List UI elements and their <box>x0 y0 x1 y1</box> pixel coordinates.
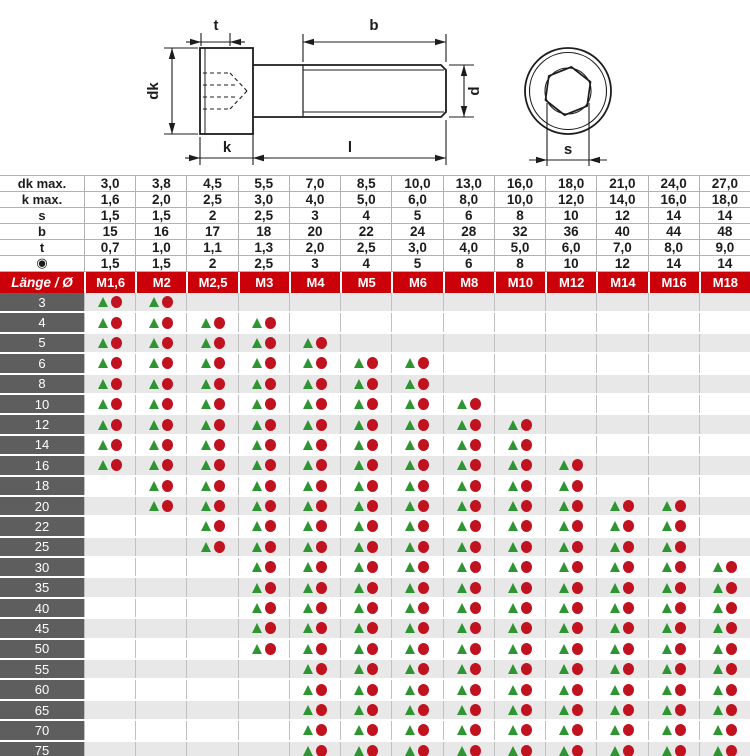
matrix-cell <box>699 721 750 739</box>
red-circle-icon <box>162 337 173 349</box>
matrix-row: 70 <box>0 721 750 741</box>
matrix-cell <box>699 538 750 556</box>
green-triangle-icon <box>508 542 518 552</box>
green-triangle-icon <box>662 521 672 531</box>
matrix-cell <box>648 395 699 413</box>
green-triangle-icon <box>354 481 364 491</box>
red-circle-icon <box>214 480 225 492</box>
red-circle-icon <box>265 520 276 532</box>
red-circle-icon <box>675 561 686 573</box>
matrix-cell <box>238 578 289 596</box>
green-triangle-icon <box>354 562 364 572</box>
matrix-cell <box>238 415 289 433</box>
spec-value-cell: 6 <box>443 256 494 271</box>
red-circle-icon <box>265 541 276 553</box>
spec-value-cell: 2,5 <box>238 208 289 223</box>
matrix-header-size: M12 <box>545 272 596 293</box>
red-circle-icon <box>623 643 634 655</box>
green-triangle-icon <box>405 705 415 715</box>
spec-value-cell: 8,0 <box>648 240 699 255</box>
red-circle-icon <box>214 398 225 410</box>
red-circle-icon <box>521 582 532 594</box>
red-circle-icon <box>214 419 225 431</box>
spec-value-cell: 32 <box>494 224 545 239</box>
red-circle-icon <box>265 622 276 634</box>
matrix-row: 3 <box>0 293 750 313</box>
red-circle-icon <box>316 561 327 573</box>
green-triangle-icon <box>405 746 415 756</box>
matrix-row: 14 <box>0 436 750 456</box>
red-circle-icon <box>675 541 686 553</box>
matrix-cell <box>648 538 699 556</box>
spec-value-cell: 1,5 <box>135 256 186 271</box>
matrix-cell <box>443 415 494 433</box>
red-circle-icon <box>367 602 378 614</box>
spec-value-cell: 6,0 <box>545 240 596 255</box>
matrix-cell <box>648 660 699 678</box>
red-circle-icon <box>521 439 532 451</box>
green-triangle-icon <box>252 583 262 593</box>
green-triangle-icon <box>303 399 313 409</box>
green-triangle-icon <box>252 338 262 348</box>
green-triangle-icon <box>457 583 467 593</box>
matrix-cell <box>596 640 647 658</box>
red-circle-icon <box>572 480 583 492</box>
matrix-cell <box>135 578 186 596</box>
green-triangle-icon <box>713 603 723 613</box>
matrix-row-length-label: 75 <box>0 742 84 756</box>
matrix-row-length-label: 50 <box>0 640 84 658</box>
matrix-row: 30 <box>0 558 750 578</box>
red-circle-icon <box>265 317 276 329</box>
matrix-cell <box>135 558 186 576</box>
red-circle-icon <box>521 561 532 573</box>
red-circle-icon <box>316 480 327 492</box>
spec-value-cell: 2,0 <box>135 192 186 207</box>
spec-row: k max.1,62,02,53,04,05,06,08,010,012,014… <box>0 192 750 208</box>
matrix-cell <box>84 354 135 372</box>
green-triangle-icon <box>98 297 108 307</box>
matrix-cell <box>135 395 186 413</box>
matrix-cell <box>135 334 186 352</box>
matrix-cell <box>238 742 289 756</box>
red-circle-icon <box>316 357 327 369</box>
red-circle-icon <box>418 684 429 696</box>
matrix-cell <box>391 558 442 576</box>
dim-label-b: b <box>369 17 378 34</box>
matrix-cell <box>545 293 596 311</box>
matrix-cell <box>340 660 391 678</box>
red-circle-icon <box>265 419 276 431</box>
red-circle-icon <box>162 398 173 410</box>
matrix-header-size: M14 <box>596 272 647 293</box>
green-triangle-icon <box>610 746 620 756</box>
spec-row: s1,51,522,53456810121414 <box>0 208 750 224</box>
red-circle-icon <box>162 296 173 308</box>
matrix-cell <box>238 599 289 617</box>
matrix-cell <box>494 599 545 617</box>
matrix-cell <box>289 517 340 535</box>
matrix-cell <box>238 680 289 698</box>
red-circle-icon <box>316 378 327 390</box>
red-circle-icon <box>265 439 276 451</box>
matrix-cell <box>238 436 289 454</box>
red-circle-icon <box>623 541 634 553</box>
green-triangle-icon <box>252 644 262 654</box>
red-circle-icon <box>111 317 122 329</box>
red-circle-icon <box>316 541 327 553</box>
red-circle-icon <box>470 419 481 431</box>
green-triangle-icon <box>201 481 211 491</box>
matrix-cell <box>494 436 545 454</box>
spec-value-cell: 8,0 <box>443 192 494 207</box>
spec-value-cell: 16,0 <box>494 176 545 191</box>
matrix-cell <box>186 599 237 617</box>
matrix-header-size: M18 <box>699 272 750 293</box>
spec-value-cell: 15 <box>84 224 135 239</box>
green-triangle-icon <box>508 420 518 430</box>
matrix-cell <box>648 640 699 658</box>
red-circle-icon <box>521 622 532 634</box>
matrix-cell <box>238 334 289 352</box>
matrix-cell <box>238 660 289 678</box>
green-triangle-icon <box>405 501 415 511</box>
spec-value-cell: 2,0 <box>289 240 340 255</box>
spec-row-label: s <box>0 208 84 223</box>
green-triangle-icon <box>610 685 620 695</box>
green-triangle-icon <box>201 501 211 511</box>
green-triangle-icon <box>610 501 620 511</box>
matrix-cell <box>648 497 699 515</box>
matrix-cell <box>391 477 442 495</box>
green-triangle-icon <box>457 521 467 531</box>
matrix-row: 16 <box>0 456 750 476</box>
red-circle-icon <box>418 541 429 553</box>
matrix-row: 12 <box>0 415 750 435</box>
matrix-row-length-label: 40 <box>0 599 84 617</box>
spec-value-cell: 3,8 <box>135 176 186 191</box>
green-triangle-icon <box>354 460 364 470</box>
matrix-cell <box>289 558 340 576</box>
matrix-row-length-label: 65 <box>0 701 84 719</box>
spec-value-cell: 0,7 <box>84 240 135 255</box>
red-circle-icon <box>675 745 686 756</box>
matrix-cell <box>391 680 442 698</box>
spec-value-cell: 4 <box>340 208 391 223</box>
green-triangle-icon <box>610 644 620 654</box>
green-triangle-icon <box>149 399 159 409</box>
matrix-cell <box>186 721 237 739</box>
red-circle-icon <box>521 459 532 471</box>
matrix-header-size: M2 <box>135 272 186 293</box>
spec-value-cell: 4,0 <box>289 192 340 207</box>
spec-value-cell: 8 <box>494 256 545 271</box>
green-triangle-icon <box>354 603 364 613</box>
matrix-cell <box>186 619 237 637</box>
matrix-cell <box>596 701 647 719</box>
red-circle-icon <box>470 602 481 614</box>
red-circle-icon <box>418 643 429 655</box>
matrix-cell <box>186 375 237 393</box>
red-circle-icon <box>367 745 378 756</box>
matrix-row: 8 <box>0 375 750 395</box>
red-circle-icon <box>572 602 583 614</box>
spec-value-cell: 10,0 <box>391 176 442 191</box>
matrix-cell <box>648 334 699 352</box>
matrix-cell <box>596 742 647 756</box>
red-circle-icon <box>316 663 327 675</box>
green-triangle-icon <box>508 583 518 593</box>
spec-value-cell: 5,5 <box>238 176 289 191</box>
matrix-cell <box>443 721 494 739</box>
matrix-cell <box>289 395 340 413</box>
red-circle-icon <box>572 684 583 696</box>
green-triangle-icon <box>149 338 159 348</box>
matrix-cell <box>596 456 647 474</box>
matrix-cell <box>340 742 391 756</box>
matrix-row-length-label: 3 <box>0 293 84 311</box>
green-triangle-icon <box>713 583 723 593</box>
green-triangle-icon <box>354 685 364 695</box>
matrix-cell <box>238 721 289 739</box>
spec-value-cell: 9,0 <box>699 240 750 255</box>
matrix-cell <box>135 436 186 454</box>
green-triangle-icon <box>508 521 518 531</box>
matrix-cell <box>648 619 699 637</box>
red-circle-icon <box>265 378 276 390</box>
matrix-row: 65 <box>0 701 750 721</box>
matrix-header-size: M8 <box>443 272 494 293</box>
matrix-cell <box>84 375 135 393</box>
matrix-cell <box>84 742 135 756</box>
green-triangle-icon <box>508 644 518 654</box>
matrix-cell <box>699 680 750 698</box>
green-triangle-icon <box>457 725 467 735</box>
spec-value-cell: 3,0 <box>238 192 289 207</box>
matrix-row: 60 <box>0 680 750 700</box>
red-circle-icon <box>418 602 429 614</box>
red-circle-icon <box>316 643 327 655</box>
green-triangle-icon <box>508 725 518 735</box>
red-circle-icon <box>470 622 481 634</box>
matrix-cell <box>596 375 647 393</box>
green-triangle-icon <box>508 746 518 756</box>
green-triangle-icon <box>610 705 620 715</box>
spec-value-cell: 20 <box>289 224 340 239</box>
red-circle-icon <box>675 582 686 594</box>
matrix-cell <box>545 354 596 372</box>
red-circle-icon <box>470 704 481 716</box>
red-circle-icon <box>623 500 634 512</box>
matrix-cell <box>545 619 596 637</box>
green-triangle-icon <box>713 644 723 654</box>
spec-value-cell: 1,5 <box>84 208 135 223</box>
green-triangle-icon <box>149 420 159 430</box>
green-triangle-icon <box>303 685 313 695</box>
matrix-cell <box>84 578 135 596</box>
red-circle-icon <box>367 704 378 716</box>
matrix-cell <box>135 701 186 719</box>
red-circle-icon <box>675 500 686 512</box>
red-circle-icon <box>470 398 481 410</box>
green-triangle-icon <box>559 583 569 593</box>
matrix-cell <box>391 517 442 535</box>
dim-label-s: s <box>564 141 572 158</box>
matrix-cell <box>494 680 545 698</box>
matrix-cell <box>494 538 545 556</box>
green-triangle-icon <box>457 542 467 552</box>
red-circle-icon <box>316 337 327 349</box>
matrix-cell <box>443 701 494 719</box>
green-triangle-icon <box>303 644 313 654</box>
matrix-cell <box>443 293 494 311</box>
matrix-cell <box>186 395 237 413</box>
matrix-cell <box>545 517 596 535</box>
matrix-cell <box>391 497 442 515</box>
matrix-cell <box>596 721 647 739</box>
matrix-cell <box>340 436 391 454</box>
matrix-cell <box>289 375 340 393</box>
matrix-cell <box>494 640 545 658</box>
red-circle-icon <box>265 398 276 410</box>
red-circle-icon <box>726 602 737 614</box>
spec-value-cell: 1,0 <box>135 240 186 255</box>
green-triangle-icon <box>713 705 723 715</box>
matrix-cell <box>186 578 237 596</box>
red-circle-icon <box>521 500 532 512</box>
green-triangle-icon <box>149 501 159 511</box>
red-circle-icon <box>367 663 378 675</box>
matrix-cell <box>84 436 135 454</box>
matrix-cell <box>648 558 699 576</box>
matrix-cell <box>84 415 135 433</box>
green-triangle-icon <box>610 562 620 572</box>
red-circle-icon <box>675 663 686 675</box>
spec-value-cell: 1,3 <box>238 240 289 255</box>
matrix-cell <box>443 680 494 698</box>
spec-value-cell: 1,1 <box>186 240 237 255</box>
red-circle-icon <box>316 622 327 634</box>
green-triangle-icon <box>354 583 364 593</box>
green-triangle-icon <box>457 460 467 470</box>
red-circle-icon <box>214 439 225 451</box>
matrix-cell <box>443 538 494 556</box>
green-triangle-icon <box>662 562 672 572</box>
green-triangle-icon <box>354 623 364 633</box>
green-triangle-icon <box>303 746 313 756</box>
spec-value-cell: 1,6 <box>84 192 135 207</box>
matrix-cell <box>596 313 647 331</box>
spec-row-label: t <box>0 240 84 255</box>
matrix-cell <box>494 456 545 474</box>
matrix-row: 18 <box>0 477 750 497</box>
matrix-cell <box>391 619 442 637</box>
matrix-cell <box>340 538 391 556</box>
matrix-cell <box>391 395 442 413</box>
matrix-cell <box>289 660 340 678</box>
matrix-cell <box>699 436 750 454</box>
matrix-cell <box>135 660 186 678</box>
red-circle-icon <box>521 724 532 736</box>
matrix-cell <box>340 721 391 739</box>
matrix-cell <box>391 293 442 311</box>
red-circle-icon <box>214 541 225 553</box>
matrix-row-length-label: 16 <box>0 456 84 474</box>
matrix-cell <box>238 313 289 331</box>
matrix-cell <box>289 721 340 739</box>
matrix-cell <box>699 395 750 413</box>
red-circle-icon <box>418 582 429 594</box>
red-circle-icon <box>470 439 481 451</box>
spec-value-cell: 40 <box>596 224 647 239</box>
red-circle-icon <box>162 459 173 471</box>
spec-value-cell: 5 <box>391 256 442 271</box>
spec-value-cell: 5 <box>391 208 442 223</box>
red-circle-icon <box>623 520 634 532</box>
green-triangle-icon <box>508 623 518 633</box>
red-circle-icon <box>265 643 276 655</box>
matrix-cell <box>443 558 494 576</box>
matrix-cell <box>545 680 596 698</box>
matrix-cell <box>443 599 494 617</box>
matrix-cell <box>340 558 391 576</box>
green-triangle-icon <box>303 358 313 368</box>
red-circle-icon <box>316 582 327 594</box>
matrix-cell <box>289 436 340 454</box>
red-circle-icon <box>367 582 378 594</box>
dim-label-dk: dk <box>145 82 162 100</box>
spec-value-cell: 3 <box>289 256 340 271</box>
matrix-cell <box>596 599 647 617</box>
red-circle-icon <box>367 398 378 410</box>
matrix-cell <box>443 497 494 515</box>
matrix-cell <box>289 477 340 495</box>
red-circle-icon <box>572 541 583 553</box>
matrix-cell <box>494 375 545 393</box>
red-circle-icon <box>316 704 327 716</box>
matrix-cell <box>494 619 545 637</box>
spec-value-cell: 36 <box>545 224 596 239</box>
green-triangle-icon <box>354 664 364 674</box>
green-triangle-icon <box>559 705 569 715</box>
green-triangle-icon <box>354 358 364 368</box>
green-triangle-icon <box>713 562 723 572</box>
red-circle-icon <box>726 663 737 675</box>
matrix-cell <box>135 517 186 535</box>
red-circle-icon <box>623 745 634 756</box>
green-triangle-icon <box>354 725 364 735</box>
matrix-header-label: Länge / Ø <box>0 272 84 293</box>
green-triangle-icon <box>405 521 415 531</box>
spec-value-cell: 8,5 <box>340 176 391 191</box>
red-circle-icon <box>214 459 225 471</box>
green-triangle-icon <box>405 420 415 430</box>
red-circle-icon <box>521 745 532 756</box>
matrix-cell <box>340 578 391 596</box>
matrix-cell <box>84 721 135 739</box>
spec-value-cell: 3 <box>289 208 340 223</box>
green-triangle-icon <box>405 725 415 735</box>
matrix-cell <box>186 538 237 556</box>
green-triangle-icon <box>713 664 723 674</box>
red-circle-icon <box>162 357 173 369</box>
green-triangle-icon <box>201 420 211 430</box>
matrix-cell <box>443 640 494 658</box>
matrix-row-length-label: 10 <box>0 395 84 413</box>
matrix-cell <box>135 538 186 556</box>
matrix-cell <box>545 578 596 596</box>
matrix-cell <box>545 415 596 433</box>
